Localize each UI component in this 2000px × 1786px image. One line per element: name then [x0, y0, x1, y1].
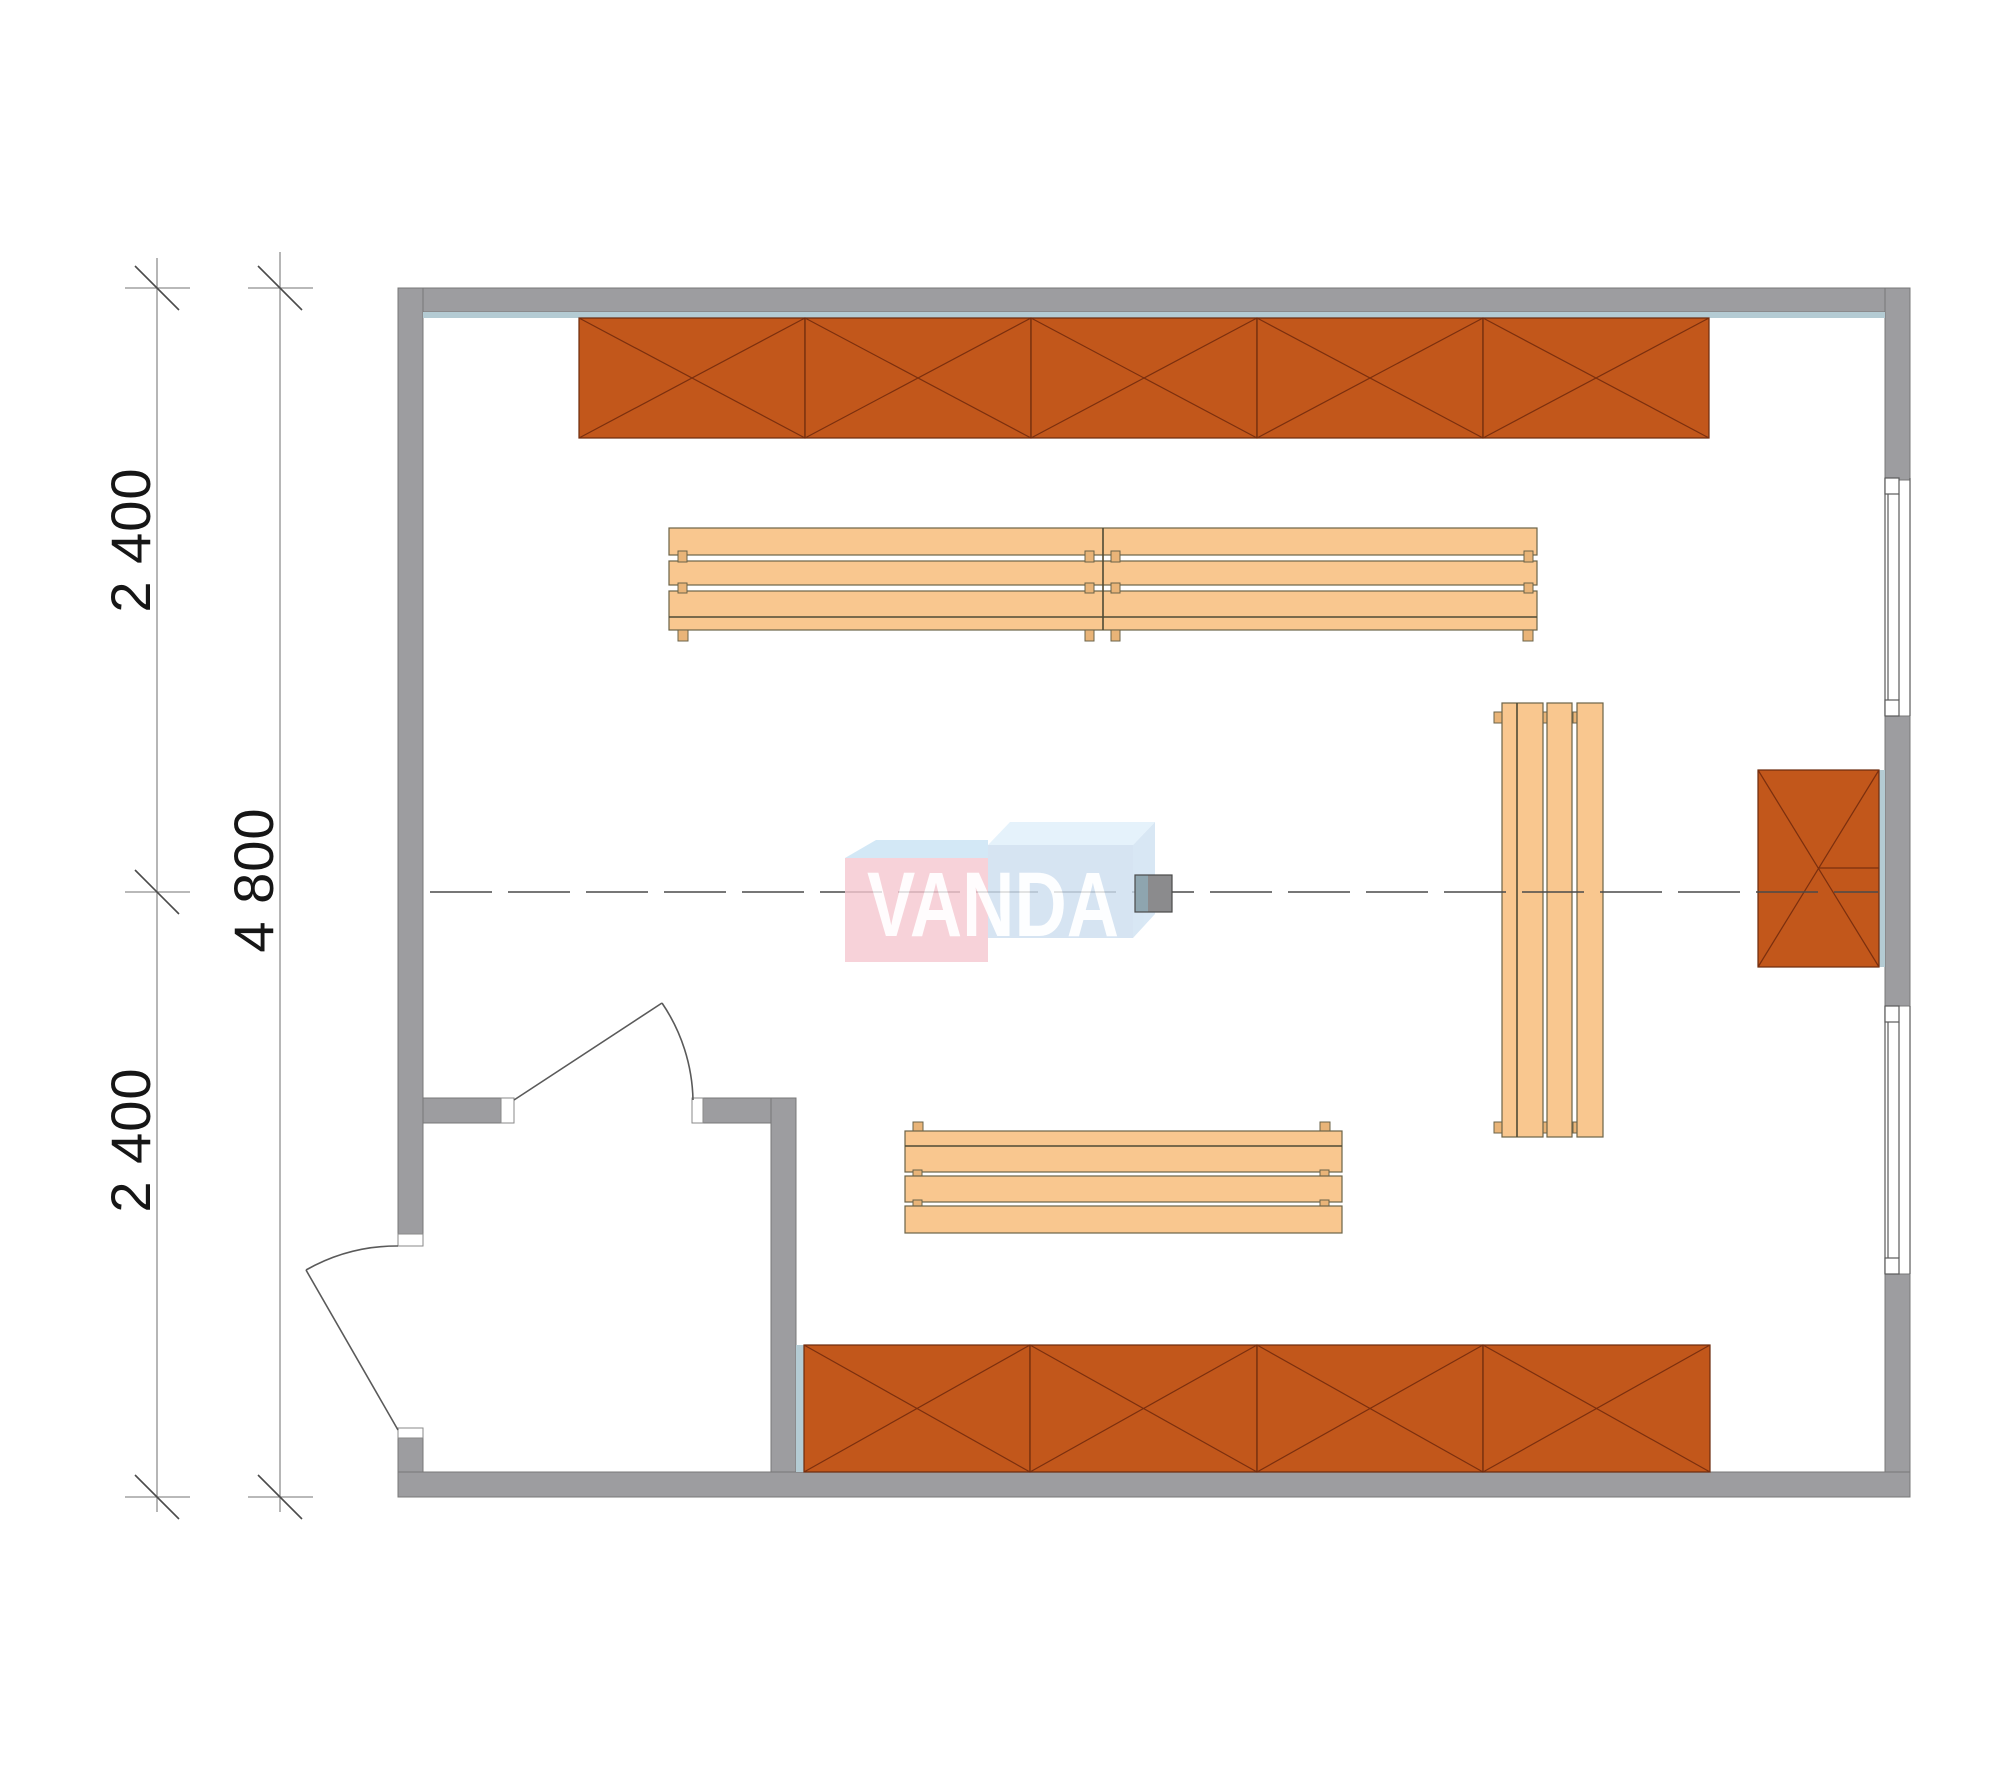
wall-right-upper — [1885, 288, 1910, 480]
right-wall-block — [1758, 770, 1879, 967]
wall-vestibule-left-stub — [423, 1098, 501, 1123]
bench-foot — [1111, 583, 1120, 593]
marker-square-left-half — [1135, 875, 1148, 912]
bench-foot — [678, 630, 688, 641]
vanda-watermark: VANDA — [845, 822, 1155, 962]
bench-foot — [1524, 583, 1533, 593]
wall-top — [398, 288, 1910, 312]
shelf-section — [804, 1345, 1030, 1472]
shelf-section — [1257, 1345, 1483, 1472]
bench-slat — [905, 1176, 1342, 1202]
shelf-section — [1030, 1345, 1257, 1472]
bench-foot — [1085, 551, 1094, 562]
dimension-lines: 2 400 2 400 4 800 — [99, 252, 313, 1519]
wall-right-lower — [1885, 1274, 1910, 1472]
upper-bench — [669, 528, 1537, 641]
panel-vestibule-wall — [796, 1345, 804, 1472]
jamb-interior-door-left — [501, 1098, 514, 1123]
jamb-exterior-door-top — [398, 1234, 423, 1246]
bench-foot — [1524, 551, 1533, 562]
window-lower — [1885, 1006, 1910, 1274]
wall-bottom — [398, 1472, 1910, 1497]
window-frame — [1885, 478, 1899, 494]
shelf-section — [1483, 318, 1709, 438]
centerline-marker-square — [1135, 875, 1172, 912]
exterior-door — [306, 1246, 398, 1430]
exterior-door-leaf — [306, 1270, 398, 1430]
vertical-bench — [1494, 703, 1603, 1137]
jamb-exterior-door-bottom — [398, 1428, 423, 1438]
bench-foot — [1523, 630, 1533, 641]
exterior-door-swing-arc — [306, 1246, 398, 1270]
bench-foot — [1111, 630, 1120, 641]
top-shelf-run — [579, 318, 1709, 438]
window-frame — [1885, 1258, 1899, 1274]
dimension-label-total: 4 800 — [222, 807, 285, 952]
dimension-label-upper: 2 400 — [99, 467, 162, 612]
bench-foot — [678, 583, 687, 593]
shelf-section — [1483, 1345, 1710, 1472]
shelf-section — [805, 318, 1031, 438]
bench-foot — [1085, 630, 1094, 641]
jamb-interior-door-right — [692, 1098, 703, 1123]
window-frame — [1885, 1006, 1899, 1022]
panel-right-wall — [1879, 770, 1885, 967]
interior-door-swing-arc — [662, 1003, 693, 1100]
interior-door-leaf — [514, 1003, 662, 1100]
bench-slat — [1547, 703, 1572, 1137]
lower-bench — [905, 1122, 1342, 1233]
bench-slat — [1502, 703, 1543, 1137]
bench-foot — [1111, 551, 1120, 562]
panel-top-wall — [423, 312, 1885, 318]
bench-foot — [1085, 583, 1094, 593]
wall-vestibule-right-stub — [703, 1098, 771, 1123]
dimension-label-lower: 2 400 — [99, 1067, 162, 1212]
floor-plan-canvas: 2 400 2 400 4 800 — [0, 0, 2000, 1786]
wall-right-middle — [1885, 716, 1910, 1006]
interior-door — [514, 1003, 693, 1100]
bench-slat — [1577, 703, 1603, 1137]
bottom-shelf-run — [804, 1345, 1710, 1472]
shelf-section — [579, 318, 805, 438]
shelf-section — [1031, 318, 1257, 438]
bench-foot — [678, 551, 687, 562]
marker-square-right-half — [1148, 875, 1172, 912]
bench-slat — [905, 1131, 1342, 1172]
window-upper — [1885, 478, 1910, 716]
wall-vestibule-right — [771, 1098, 796, 1472]
watermark-blue-box-bevel-top — [988, 822, 1155, 845]
bench-slat — [905, 1206, 1342, 1233]
watermark-text: VANDA — [867, 854, 1119, 956]
shelf-section — [1257, 318, 1483, 438]
floor-plan-drawing: 2 400 2 400 4 800 — [0, 0, 2000, 1786]
window-frame — [1885, 700, 1899, 716]
wall-left-upper — [398, 288, 423, 1234]
